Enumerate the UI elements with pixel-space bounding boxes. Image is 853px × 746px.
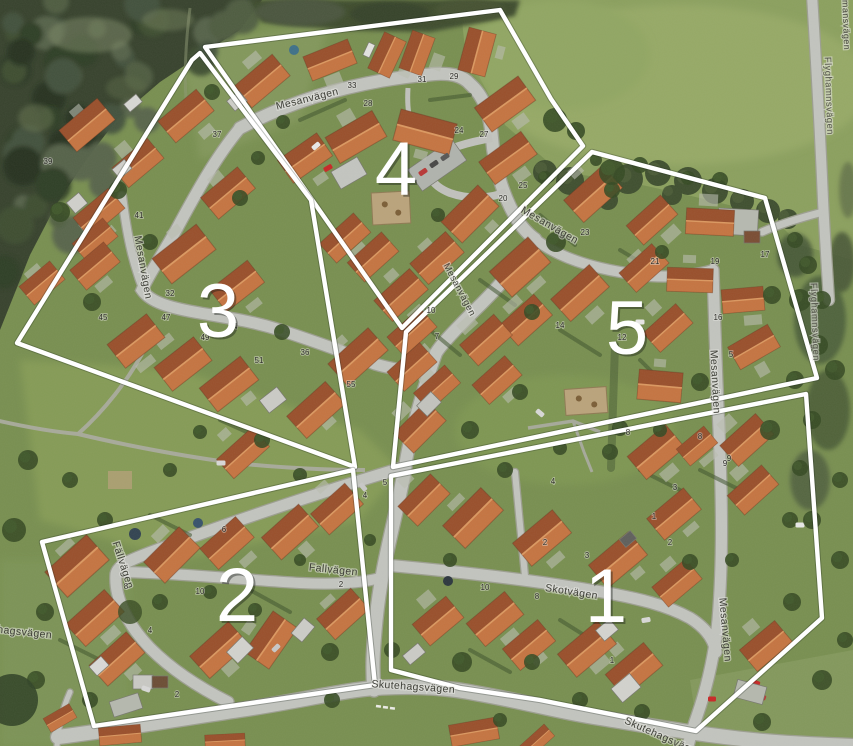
svg-text:2: 2 <box>175 690 180 699</box>
svg-text:6: 6 <box>222 525 227 534</box>
svg-text:1: 1 <box>585 554 627 639</box>
svg-text:39: 39 <box>44 157 53 166</box>
svg-text:4: 4 <box>363 491 368 500</box>
svg-text:29: 29 <box>450 72 459 81</box>
svg-text:3: 3 <box>673 483 678 492</box>
svg-text:37: 37 <box>213 130 222 139</box>
svg-text:10: 10 <box>481 583 490 592</box>
svg-text:1: 1 <box>610 656 615 665</box>
svg-text:47: 47 <box>162 313 171 322</box>
svg-text:45: 45 <box>99 313 108 322</box>
svg-text:36: 36 <box>301 348 310 357</box>
svg-text:4: 4 <box>551 477 556 486</box>
svg-text:9: 9 <box>723 459 728 468</box>
svg-text:31: 31 <box>418 75 427 84</box>
svg-text:2: 2 <box>339 580 344 589</box>
svg-text:2: 2 <box>668 538 673 547</box>
svg-text:16: 16 <box>714 313 723 322</box>
svg-text:55: 55 <box>347 380 356 389</box>
svg-text:5: 5 <box>606 286 648 371</box>
svg-text:8: 8 <box>698 432 703 441</box>
svg-text:9: 9 <box>727 454 732 463</box>
svg-text:27: 27 <box>480 130 489 139</box>
svg-text:4: 4 <box>375 127 417 212</box>
svg-text:8: 8 <box>626 428 631 437</box>
svg-text:2: 2 <box>543 538 548 547</box>
svg-text:17: 17 <box>761 250 770 259</box>
svg-text:23: 23 <box>581 228 590 237</box>
svg-text:4: 4 <box>148 626 153 635</box>
svg-text:1: 1 <box>652 512 657 521</box>
svg-text:33: 33 <box>348 81 357 90</box>
svg-text:10: 10 <box>196 587 205 596</box>
svg-text:28: 28 <box>364 99 373 108</box>
svg-text:51: 51 <box>255 356 264 365</box>
svg-text:14: 14 <box>556 321 565 330</box>
svg-text:19: 19 <box>711 257 720 266</box>
svg-text:8: 8 <box>124 582 129 591</box>
svg-text:7: 7 <box>435 332 440 341</box>
svg-text:2: 2 <box>216 553 258 638</box>
svg-text:5: 5 <box>729 350 734 359</box>
svg-text:8: 8 <box>535 592 540 601</box>
svg-text:24: 24 <box>455 126 464 135</box>
svg-text:10: 10 <box>427 306 436 315</box>
svg-text:3: 3 <box>197 269 239 354</box>
svg-text:32: 32 <box>166 289 175 298</box>
svg-text:41: 41 <box>135 211 144 220</box>
svg-text:5: 5 <box>383 478 388 487</box>
svg-text:21: 21 <box>651 257 660 266</box>
svg-text:20: 20 <box>499 194 508 203</box>
svg-text:25: 25 <box>519 181 528 190</box>
